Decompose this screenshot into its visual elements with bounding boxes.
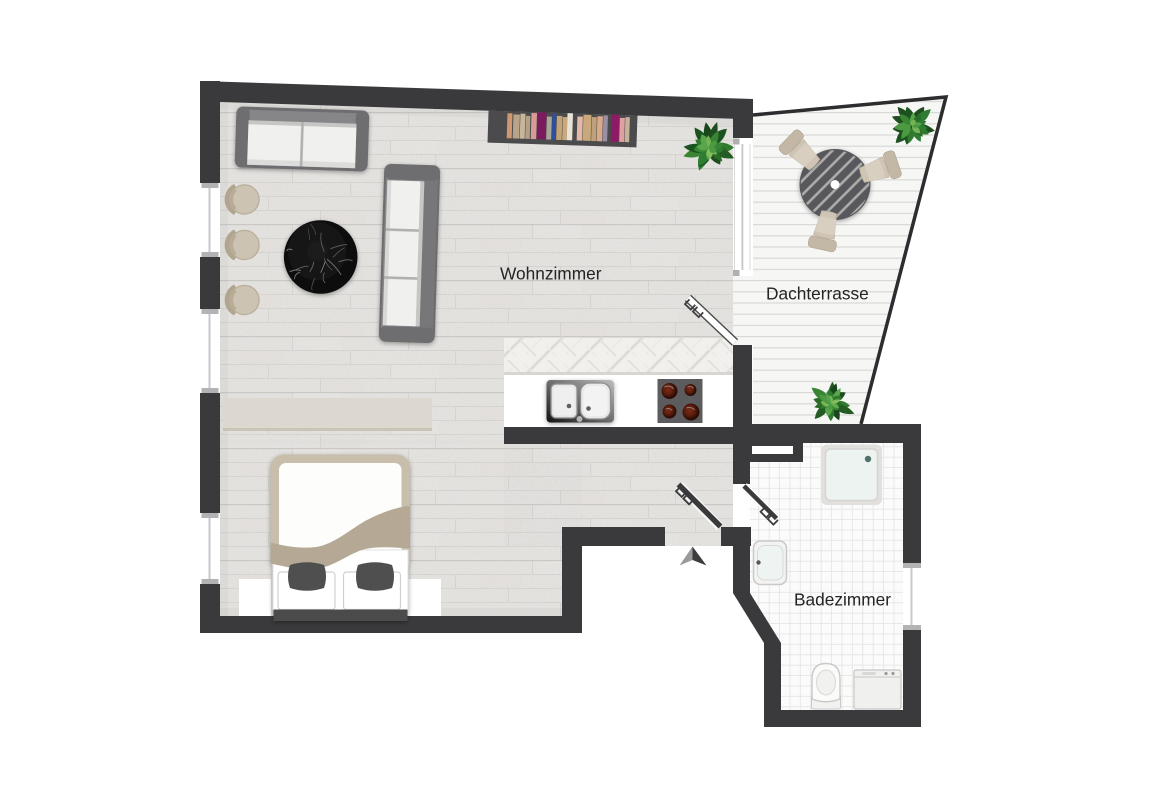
svg-text:Wohnzimmer: Wohnzimmer [500, 264, 602, 284]
svg-text:Badezimmer: Badezimmer [794, 589, 891, 609]
svg-text:Dachterrasse: Dachterrasse [766, 284, 869, 304]
